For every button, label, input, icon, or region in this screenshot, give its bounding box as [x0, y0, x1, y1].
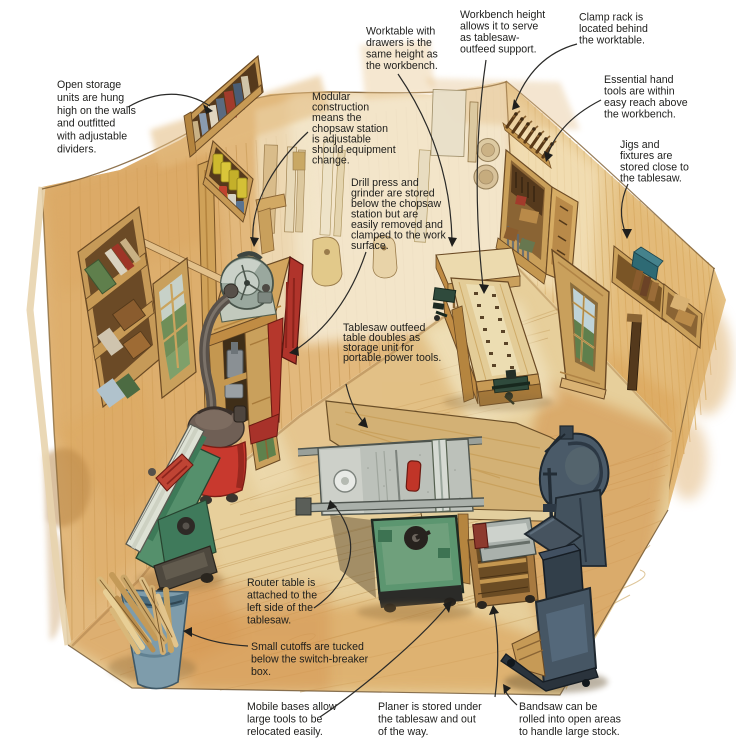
svg-text:dividers.: dividers. [57, 144, 96, 156]
svg-text:left side of the: left side of the [247, 602, 313, 614]
svg-text:Workbench height: Workbench height [460, 9, 545, 21]
svg-text:Jigs and: Jigs and [620, 139, 660, 151]
svg-text:stored close to: stored close to [620, 161, 689, 173]
svg-text:Planer is stored under: Planer is stored under [378, 701, 482, 713]
svg-text:portable power tools.: portable power tools. [343, 352, 441, 364]
svg-text:the workbench.: the workbench. [604, 109, 676, 121]
svg-text:drawers is the: drawers is the [366, 37, 432, 49]
svg-text:Small cutoffs are tucked: Small cutoffs are tucked [251, 641, 364, 653]
svg-text:large tools to be: large tools to be [247, 713, 322, 725]
svg-text:Worktable with: Worktable with [366, 26, 435, 38]
svg-text:to handle large stock.: to handle large stock. [519, 726, 620, 738]
svg-text:the tablesaw.: the tablesaw. [620, 173, 682, 185]
svg-text:units are hung: units are hung [57, 92, 124, 104]
svg-text:Essential hand: Essential hand [604, 74, 674, 86]
svg-text:relocated easily.: relocated easily. [247, 726, 323, 738]
svg-text:located behind: located behind [579, 23, 648, 35]
svg-text:below the switch-breaker: below the switch-breaker [251, 653, 369, 665]
svg-text:box.: box. [251, 666, 271, 678]
svg-text:Router table is: Router table is [247, 577, 315, 589]
svg-text:as tablesaw-: as tablesaw- [460, 32, 520, 44]
svg-text:tools are within: tools are within [604, 86, 675, 98]
svg-text:surface.: surface. [351, 240, 389, 252]
svg-text:fixtures are: fixtures are [620, 150, 673, 162]
svg-text:with adjustable: with adjustable [56, 131, 127, 143]
svg-text:tablesaw.: tablesaw. [247, 615, 291, 627]
svg-text:Bandsaw can be: Bandsaw can be [519, 701, 597, 713]
svg-text:rolled into open areas: rolled into open areas [519, 713, 621, 725]
svg-text:and outfitted: and outfitted [57, 118, 115, 130]
svg-text:attached to the: attached to the [247, 590, 317, 602]
svg-text:the tablesaw and out: the tablesaw and out [378, 713, 476, 725]
svg-text:same height as: same height as [366, 49, 438, 61]
svg-text:easy reach above: easy reach above [604, 97, 688, 109]
svg-text:the worktable.: the worktable. [579, 35, 645, 47]
svg-text:change.: change. [312, 155, 350, 167]
svg-text:the workbench.: the workbench. [366, 60, 438, 72]
svg-text:Open storage: Open storage [57, 79, 121, 91]
svg-text:of the way.: of the way. [378, 726, 428, 738]
svg-text:allows it to serve: allows it to serve [460, 21, 538, 33]
svg-text:outfeed support.: outfeed support. [460, 44, 537, 56]
svg-text:high on the walls: high on the walls [57, 105, 136, 117]
svg-text:Mobile bases allow: Mobile bases allow [247, 701, 337, 713]
svg-text:Clamp rack is: Clamp rack is [579, 12, 643, 24]
